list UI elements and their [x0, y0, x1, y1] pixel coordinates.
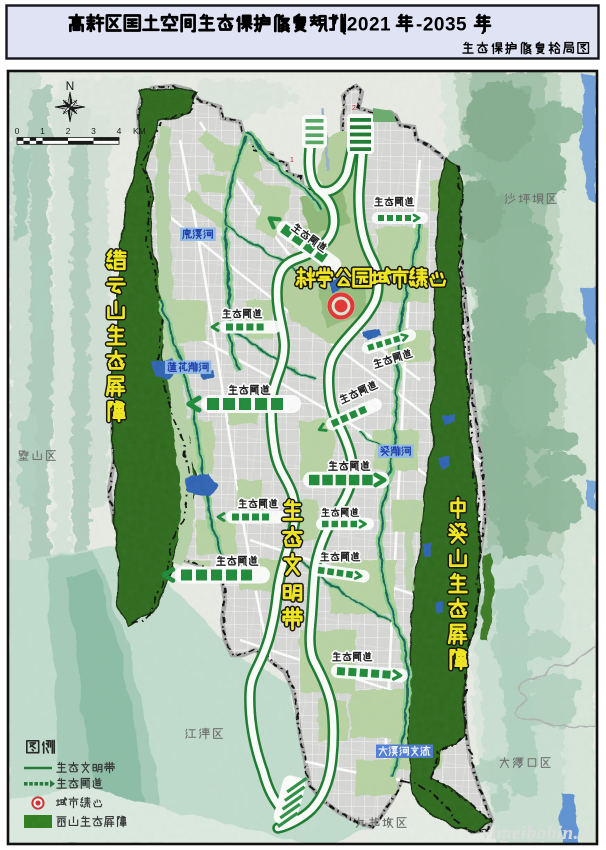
svg-text:): ): [481, 14, 487, 34]
svg-text:-2035: -2035: [416, 15, 467, 36]
svg-text:(2021: (2021: [340, 15, 391, 36]
